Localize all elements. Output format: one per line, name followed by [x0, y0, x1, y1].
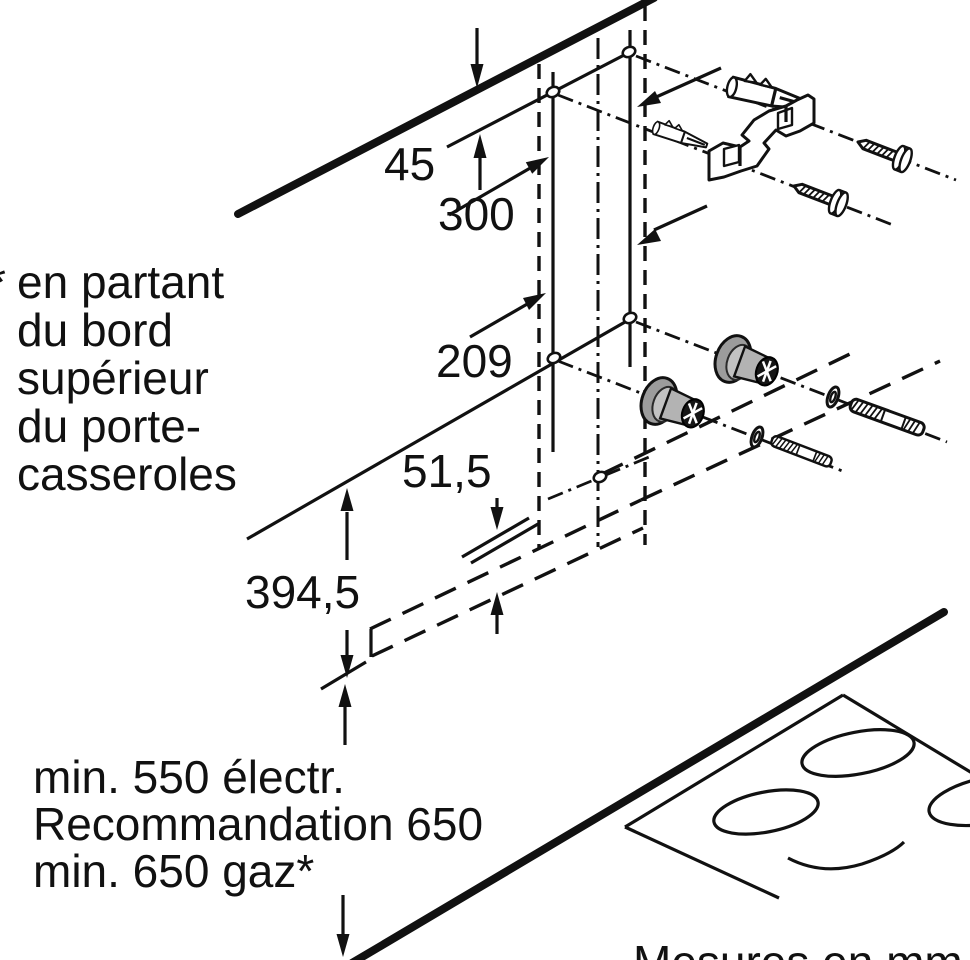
- hanger-bolt-icon: [770, 435, 833, 468]
- burner: [788, 842, 904, 869]
- cooktop: [625, 695, 970, 898]
- screw-icon: [790, 174, 851, 217]
- dim-209-label: 209: [436, 335, 513, 387]
- dim-394-5-label: 394,5: [245, 566, 360, 618]
- spacer-icon: [635, 373, 711, 440]
- clearance-note: min. 550 électr. Recommandation 650 min.…: [33, 751, 483, 897]
- burner: [710, 782, 822, 841]
- clearance-recommended-label: Recommandation 650: [33, 798, 483, 850]
- screw-icon: [854, 130, 915, 173]
- washer-icon: [749, 425, 766, 448]
- worktop-edge-line: [352, 612, 944, 960]
- mounting-hardware: [635, 70, 926, 468]
- reference-note-line: du bord: [17, 304, 173, 356]
- mounting-holes: [545, 45, 638, 484]
- reference-note-line: supérieur: [17, 352, 209, 404]
- installation-diagram: 45 300 209 51,5 394,5 * en partant du bo…: [0, 0, 970, 960]
- mounting-hole: [545, 85, 561, 99]
- mounting-hole: [621, 45, 637, 59]
- reference-note-line: casseroles: [17, 448, 237, 500]
- dim-45-label: 45: [384, 138, 435, 190]
- dimension-tick: [321, 662, 366, 689]
- clearance-electric-label: min. 550 électr.: [33, 751, 345, 803]
- dim-51-5-label: 51,5: [402, 445, 492, 497]
- reference-note-line: en partant: [17, 256, 224, 308]
- burner: [798, 722, 918, 785]
- reference-note-line: du porte-: [17, 400, 201, 452]
- reference-note: * en partant du bord supérieur du porte-…: [0, 256, 237, 500]
- diagram-canvas: 45 300 209 51,5 394,5 * en partant du bo…: [0, 0, 970, 960]
- wall-anchor-icon: [651, 116, 710, 151]
- clearance-gas-label: min. 650 gaz*: [33, 845, 314, 897]
- mounting-hole: [592, 470, 608, 484]
- burner: [925, 766, 970, 835]
- spacer-icon: [709, 331, 785, 398]
- hanger-bolt-icon: [849, 398, 926, 437]
- units-label: Mesures en mm: [633, 936, 963, 960]
- asterisk-marker: *: [0, 256, 6, 308]
- mounting-bracket-icon: [709, 95, 814, 180]
- dim-300-label: 300: [438, 188, 515, 240]
- mounting-hole: [622, 311, 638, 325]
- washer-icon: [825, 385, 842, 408]
